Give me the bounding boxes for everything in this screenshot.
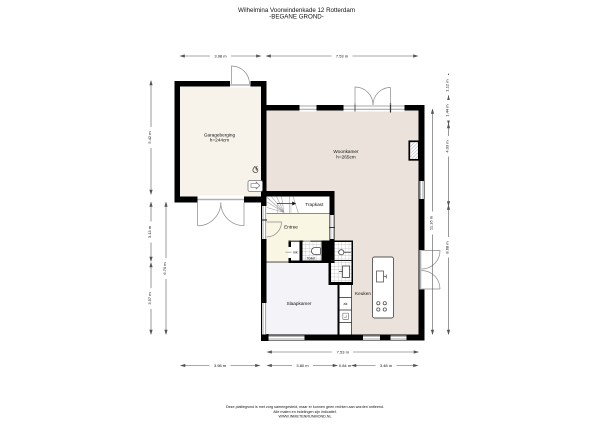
svg-text:8.68 m: 8.68 m — [445, 241, 450, 254]
svg-text:Trapkast: Trapkast — [305, 202, 324, 207]
svg-text:4.03 m: 4.03 m — [445, 140, 450, 153]
svg-text:3.80 m: 3.80 m — [296, 363, 309, 368]
svg-text:Entree: Entree — [284, 225, 298, 230]
svg-text:Woonkamer: Woonkamer — [333, 149, 359, 154]
svg-text:0.84 m: 0.84 m — [339, 363, 352, 368]
svg-text:-BEGANE GROND-: -BEGANE GROND- — [269, 14, 324, 21]
svg-text:h=265cm: h=265cm — [336, 154, 356, 159]
svg-text:1.44 m: 1.44 m — [445, 104, 450, 117]
svg-text:6.70 m: 6.70 m — [162, 262, 167, 275]
svg-text:Slaapkamer: Slaapkamer — [286, 301, 311, 306]
svg-text:Toilet: Toilet — [307, 256, 316, 260]
svg-text:7.53 m: 7.53 m — [336, 54, 349, 59]
svg-text:3.13 m: 3.13 m — [147, 225, 152, 238]
svg-text:Deze plattegrond is met zorg s: Deze plattegrond is met zorg samengestel… — [226, 405, 384, 409]
svg-text:Alle maten en indelingen zijn: Alle maten en indelingen zijn indicatief… — [273, 410, 337, 414]
svg-text:1.12 m: 1.12 m — [445, 79, 450, 92]
svg-text:3.98 m: 3.98 m — [214, 363, 227, 368]
svg-text:3.48 m: 3.48 m — [380, 363, 393, 368]
svg-text:h=244cm: h=244cm — [210, 138, 230, 143]
svg-text:WWW.INMETENRIJNMOND.NL: WWW.INMETENRIJNMOND.NL — [278, 415, 331, 419]
svg-text:3.57 m: 3.57 m — [147, 292, 152, 305]
svg-text:Garageberging: Garageberging — [204, 132, 236, 137]
svg-text:3.98 m: 3.98 m — [214, 54, 227, 59]
svg-text:ak: ak — [344, 302, 348, 306]
svg-text:mk: mk — [293, 250, 298, 254]
svg-text:7.53 m: 7.53 m — [337, 350, 350, 355]
svg-text:5.42 m: 5.42 m — [147, 131, 152, 144]
svg-text:Keuken: Keuken — [355, 291, 371, 296]
svg-text:11.16 m: 11.16 m — [429, 215, 434, 230]
